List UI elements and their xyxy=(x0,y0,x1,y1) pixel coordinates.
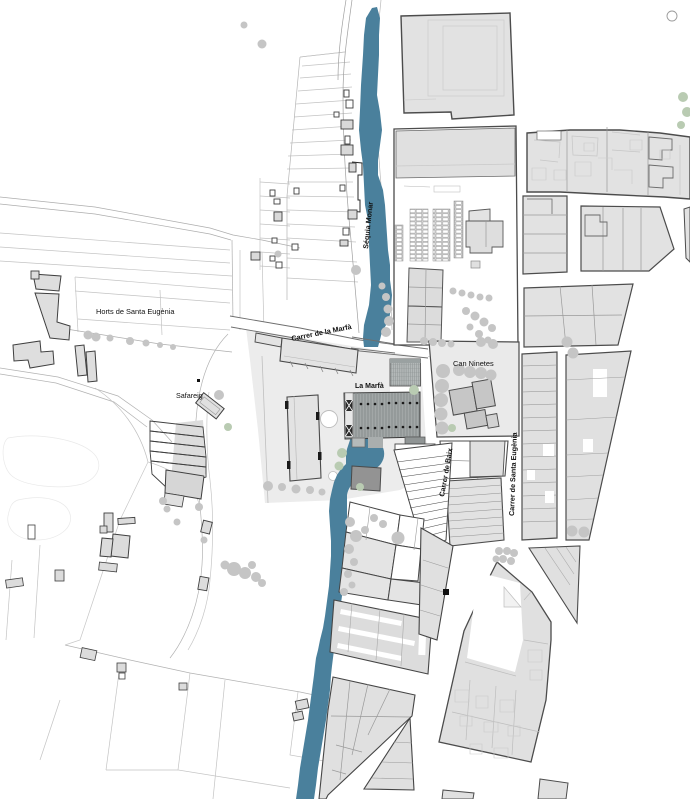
svg-text:Can Ninetes: Can Ninetes xyxy=(453,359,494,368)
svg-text:Safareig: Safareig xyxy=(176,391,203,400)
svg-text:La Marfà: La Marfà xyxy=(355,383,384,390)
svg-text:Horts de Santa Eugènia: Horts de Santa Eugènia xyxy=(96,307,175,316)
